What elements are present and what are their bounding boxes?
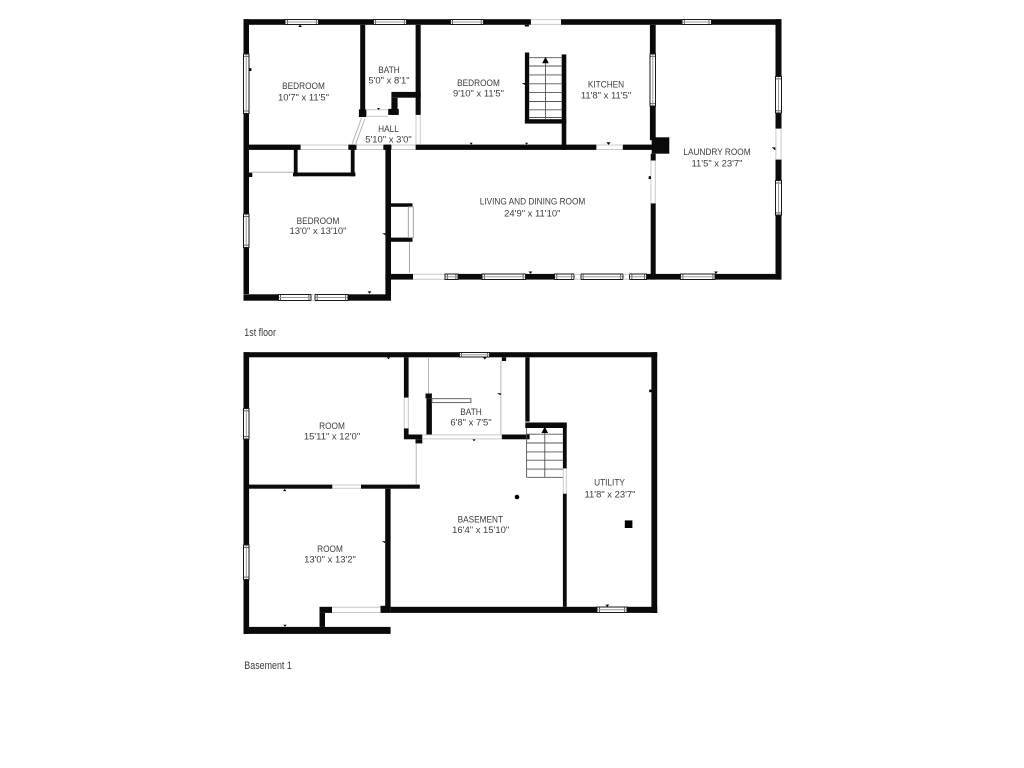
svg-text:UTILITY: UTILITY xyxy=(594,477,625,487)
svg-text:BATH: BATH xyxy=(378,65,399,75)
svg-text:13'0" x 13'2": 13'0" x 13'2" xyxy=(304,555,356,565)
svg-text:BEDROOM: BEDROOM xyxy=(457,78,500,88)
svg-text:BEDROOM: BEDROOM xyxy=(282,81,325,91)
svg-text:11'5" x 23'7": 11'5" x 23'7" xyxy=(691,159,742,169)
svg-text:11'8" x 11'5": 11'8" x 11'5" xyxy=(581,91,631,101)
svg-text:LIVING AND DINING ROOM: LIVING AND DINING ROOM xyxy=(480,196,586,206)
svg-text:ROOM: ROOM xyxy=(317,544,343,554)
svg-text:24'9" x 11'10": 24'9" x 11'10" xyxy=(504,209,560,219)
svg-text:Basement 1: Basement 1 xyxy=(244,660,292,672)
svg-text:BATH: BATH xyxy=(460,407,481,417)
svg-text:6'8" x 7'5": 6'8" x 7'5" xyxy=(450,418,491,428)
svg-text:BASEMENT: BASEMENT xyxy=(458,514,504,524)
svg-text:11'8" x 23'7": 11'8" x 23'7" xyxy=(584,490,635,500)
svg-text:BEDROOM: BEDROOM xyxy=(297,216,340,226)
svg-text:1st floor: 1st floor xyxy=(244,327,276,339)
svg-text:LAUNDRY ROOM: LAUNDRY ROOM xyxy=(683,147,750,157)
svg-text:15'11" x 12'0": 15'11" x 12'0" xyxy=(304,432,360,442)
svg-text:5'10" x 3'0": 5'10" x 3'0" xyxy=(365,135,412,145)
svg-text:16'4" x 15'10": 16'4" x 15'10" xyxy=(452,525,509,535)
svg-text:13'0" x 13'10": 13'0" x 13'10" xyxy=(289,226,346,236)
svg-text:10'7" x 11'5": 10'7" x 11'5" xyxy=(278,93,329,103)
svg-text:KITCHEN: KITCHEN xyxy=(588,79,624,89)
svg-text:9'10" x 11'5": 9'10" x 11'5" xyxy=(453,89,504,99)
svg-text:HALL: HALL xyxy=(378,124,399,134)
svg-text:ROOM: ROOM xyxy=(319,421,345,431)
svg-text:5'0" x 8'1": 5'0" x 8'1" xyxy=(368,76,409,86)
